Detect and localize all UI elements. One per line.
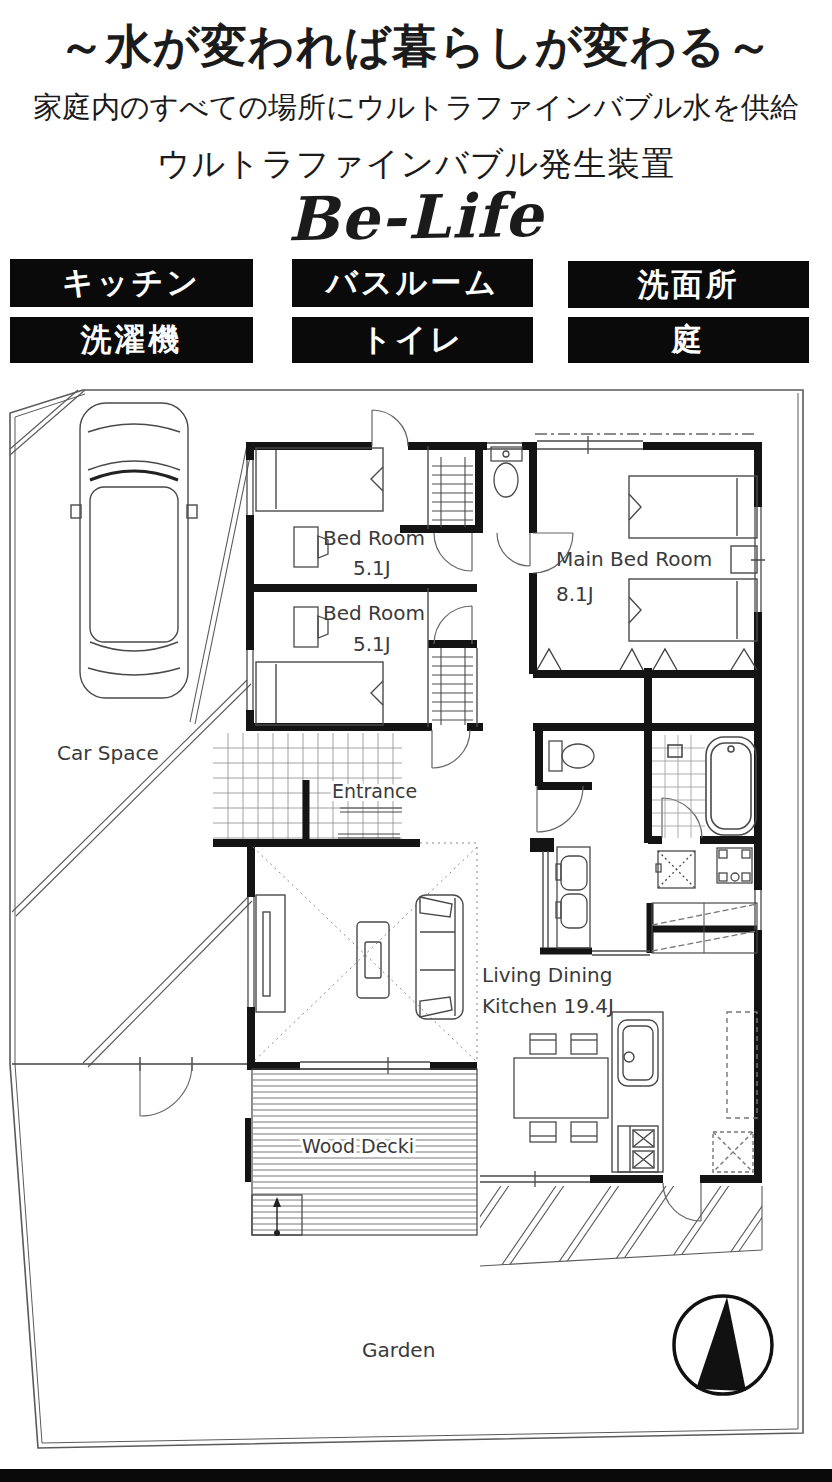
- main-bedroom-label: Main Bed Room: [556, 547, 712, 571]
- north-compass-icon: [674, 1296, 772, 1394]
- bathroom: [652, 735, 756, 838]
- bedroom1-label: Bed Room: [323, 526, 425, 550]
- ldk-label-line2: Kitchen 19.4J: [482, 994, 614, 1018]
- car-space-label: Car Space: [57, 741, 159, 765]
- kitchen: [612, 1012, 757, 1172]
- bedroom2-size: 5.1J: [353, 632, 391, 656]
- entrance-label: Entrance: [332, 780, 417, 802]
- main-bedroom-size: 8.1J: [556, 582, 594, 606]
- garden-label: Garden: [362, 1338, 435, 1362]
- car-icon: [71, 403, 197, 698]
- dining-set: [514, 1034, 608, 1142]
- flyer-page: ～水が変われば暮らしが変わる～ 家庭内のすべての場所にウルトラファインバブル水を…: [0, 0, 832, 1482]
- laundry-area: [556, 847, 757, 953]
- bottom-bar: [0, 1469, 832, 1482]
- ldk-label-line1: Living Dining: [482, 963, 612, 987]
- partitions: [428, 446, 650, 955]
- bedroom2-label: Bed Room: [323, 601, 425, 625]
- toilet-fixtures: [491, 447, 594, 771]
- wall-block: [530, 838, 554, 852]
- approach-path: [440, 1180, 785, 1279]
- bedroom1-size: 5.1J: [353, 556, 391, 580]
- closet-folding-doors: [537, 649, 757, 670]
- floor-plan: Car Space: [0, 0, 832, 1482]
- living-room: [253, 843, 477, 1062]
- wood-deck-label: Wood Decki: [302, 1135, 414, 1157]
